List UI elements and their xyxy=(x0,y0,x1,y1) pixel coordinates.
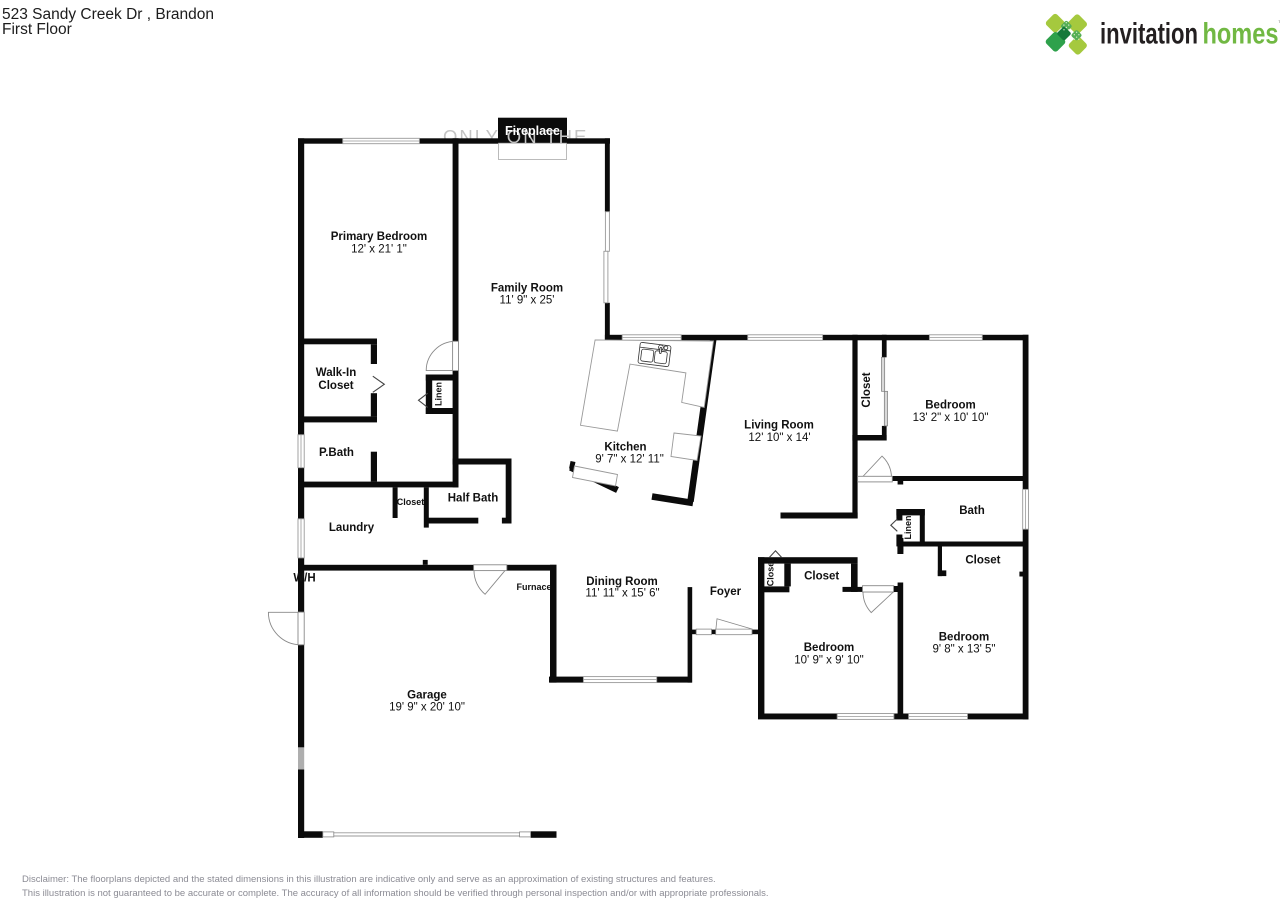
svg-text:11' 11" x 15' 6": 11' 11" x 15' 6" xyxy=(585,588,659,600)
svg-text:Closet: Closet xyxy=(965,554,1000,566)
svg-text:11' 9" x 25': 11' 9" x 25' xyxy=(500,295,555,307)
svg-text:Garage: Garage xyxy=(407,690,447,702)
svg-text:This illustration is not guara: This illustration is not guaranteed to b… xyxy=(22,888,769,899)
svg-text:homes: homes xyxy=(1203,18,1279,51)
svg-text:Primary Bedroom: Primary Bedroom xyxy=(331,231,428,243)
svg-text:Laundry: Laundry xyxy=(329,522,375,534)
svg-text:Furnace: Furnace xyxy=(516,582,551,592)
svg-text:W/H: W/H xyxy=(293,573,315,585)
svg-text:invitation: invitation xyxy=(1100,18,1198,51)
svg-text:Linen: Linen xyxy=(434,382,444,406)
svg-text:Bath: Bath xyxy=(959,505,985,517)
svg-text:Kitchen: Kitchen xyxy=(604,442,646,454)
svg-text:10' 9" x 9' 10": 10' 9" x 9' 10" xyxy=(794,655,863,667)
svg-text:Fireplace: Fireplace xyxy=(505,124,560,138)
svg-text:Family Room: Family Room xyxy=(491,283,563,295)
svg-text:Foyer: Foyer xyxy=(710,586,742,598)
svg-text:Closet: Closet xyxy=(861,372,873,407)
svg-text:Linen: Linen xyxy=(903,516,913,540)
svg-text:Bedroom: Bedroom xyxy=(939,632,989,644)
svg-text:Closet: Closet xyxy=(766,559,776,587)
svg-text:P.Bath: P.Bath xyxy=(319,447,354,459)
svg-text:19' 9" x 20' 10": 19' 9" x 20' 10" xyxy=(389,702,465,714)
svg-text:Dining Room: Dining Room xyxy=(586,576,658,588)
svg-text:Closet: Closet xyxy=(804,570,839,582)
svg-text:9' 7" x 12' 11": 9' 7" x 12' 11" xyxy=(595,454,664,466)
svg-text:Living Room: Living Room xyxy=(744,420,814,432)
svg-text:12' x 21' 1": 12' x 21' 1" xyxy=(351,244,407,256)
svg-text:Half Bath: Half Bath xyxy=(448,493,498,505)
svg-text:13' 2" x 10' 10": 13' 2" x 10' 10" xyxy=(913,412,989,424)
svg-text:Closet: Closet xyxy=(397,497,425,507)
svg-text:Bedroom: Bedroom xyxy=(925,400,975,412)
svg-text:Disclaimer: The floorplans dep: Disclaimer: The floorplans depicted and … xyxy=(22,874,716,885)
svg-text:12' 10" x 14': 12' 10" x 14' xyxy=(748,432,810,444)
svg-text:Walk-In: Walk-In xyxy=(316,367,356,379)
svg-text:Bedroom: Bedroom xyxy=(804,642,854,654)
svg-text:9' 8" x 13' 5": 9' 8" x 13' 5" xyxy=(932,644,995,656)
svg-text:First Floor: First Floor xyxy=(2,21,72,38)
svg-text:Closet: Closet xyxy=(318,380,353,392)
